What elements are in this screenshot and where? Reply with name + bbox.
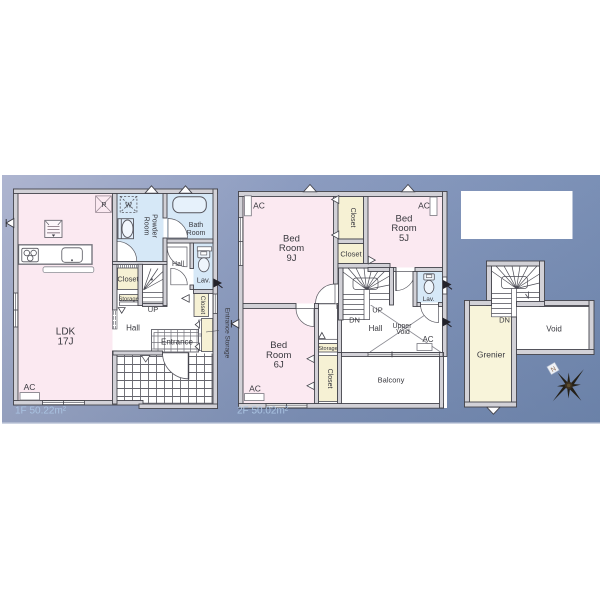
svg-text:Void: Void <box>396 329 410 336</box>
svg-text:Room: Room <box>143 217 150 236</box>
svg-text:5J: 5J <box>399 233 409 244</box>
svg-text:2F 50.02m²: 2F 50.02m² <box>237 406 289 417</box>
svg-text:Lav.: Lav. <box>197 276 211 285</box>
svg-text:R: R <box>101 202 106 209</box>
svg-text:Closet: Closet <box>117 275 139 284</box>
svg-text:Hall: Hall <box>126 324 140 333</box>
svg-text:Powder: Powder <box>151 214 158 238</box>
svg-text:Closet: Closet <box>326 369 333 389</box>
svg-text:AC: AC <box>249 384 261 394</box>
svg-text:17J: 17J <box>57 336 73 347</box>
svg-text:Entrance: Entrance <box>161 338 194 347</box>
svg-text:Room: Room <box>187 230 206 237</box>
svg-text:Hall: Hall <box>172 261 185 268</box>
svg-text:Grenier: Grenier <box>477 350 506 360</box>
svg-text:Balcony: Balcony <box>378 376 405 385</box>
svg-text:DN: DN <box>349 316 360 325</box>
svg-text:Closet: Closet <box>349 208 356 228</box>
svg-text:6J: 6J <box>274 360 284 371</box>
svg-text:Lav.: Lav. <box>423 296 435 303</box>
svg-text:9J: 9J <box>286 253 296 264</box>
svg-text:UP: UP <box>372 306 382 315</box>
svg-text:Entrance Storage: Entrance Storage <box>224 308 231 359</box>
svg-text:AC: AC <box>24 382 36 392</box>
svg-text:DN: DN <box>499 316 510 325</box>
svg-text:Closet: Closet <box>340 249 362 258</box>
svg-text:AC: AC <box>422 335 433 344</box>
svg-text:Storage: Storage <box>318 346 337 352</box>
svg-text:Storage: Storage <box>119 297 139 303</box>
svg-text:Bath: Bath <box>189 222 204 229</box>
svg-text:AC: AC <box>418 201 430 211</box>
svg-text:AC: AC <box>253 201 265 211</box>
svg-text:Hall: Hall <box>369 324 383 333</box>
svg-text:W: W <box>125 202 132 209</box>
svg-text:UP: UP <box>148 305 158 314</box>
svg-text:Void: Void <box>546 325 562 334</box>
svg-text:Closet: Closet <box>199 296 206 315</box>
svg-text:1F 50.22m²: 1F 50.22m² <box>15 406 67 417</box>
